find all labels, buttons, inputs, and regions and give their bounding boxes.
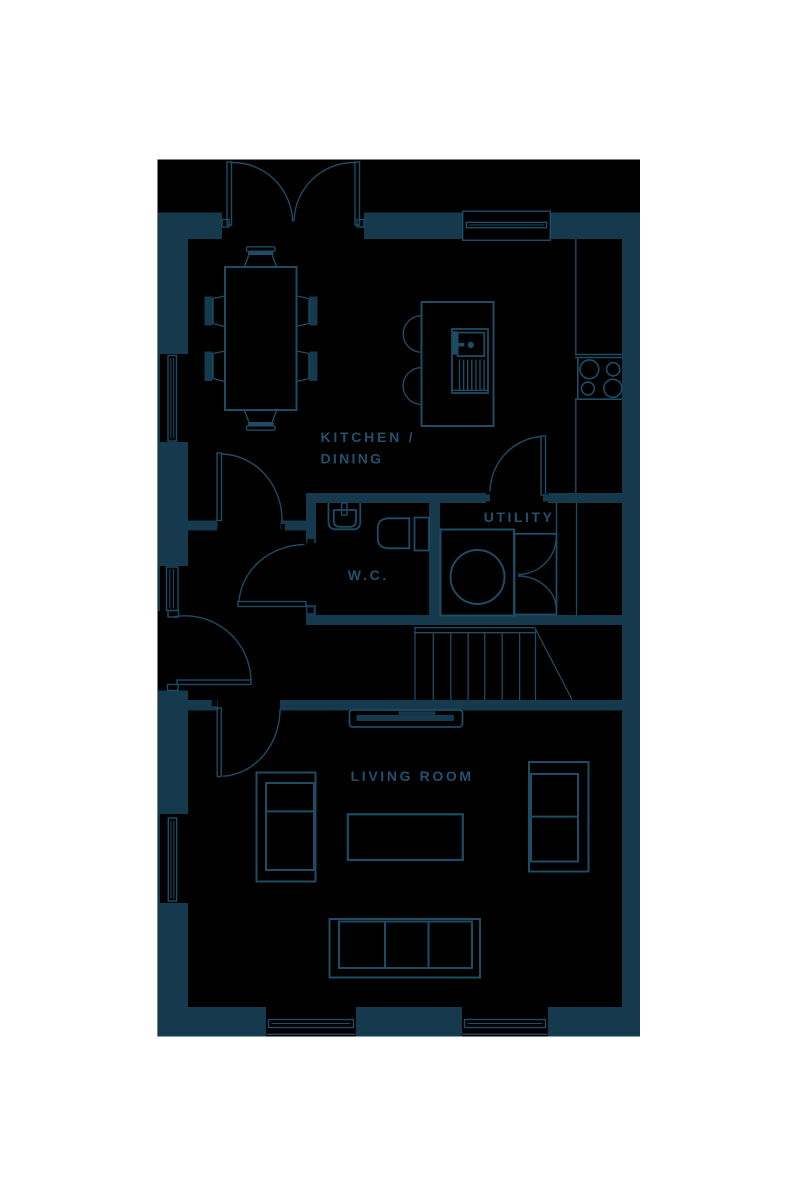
svg-text:KITCHEN /: KITCHEN / [321,429,413,445]
svg-text:DINING: DINING [321,450,382,466]
